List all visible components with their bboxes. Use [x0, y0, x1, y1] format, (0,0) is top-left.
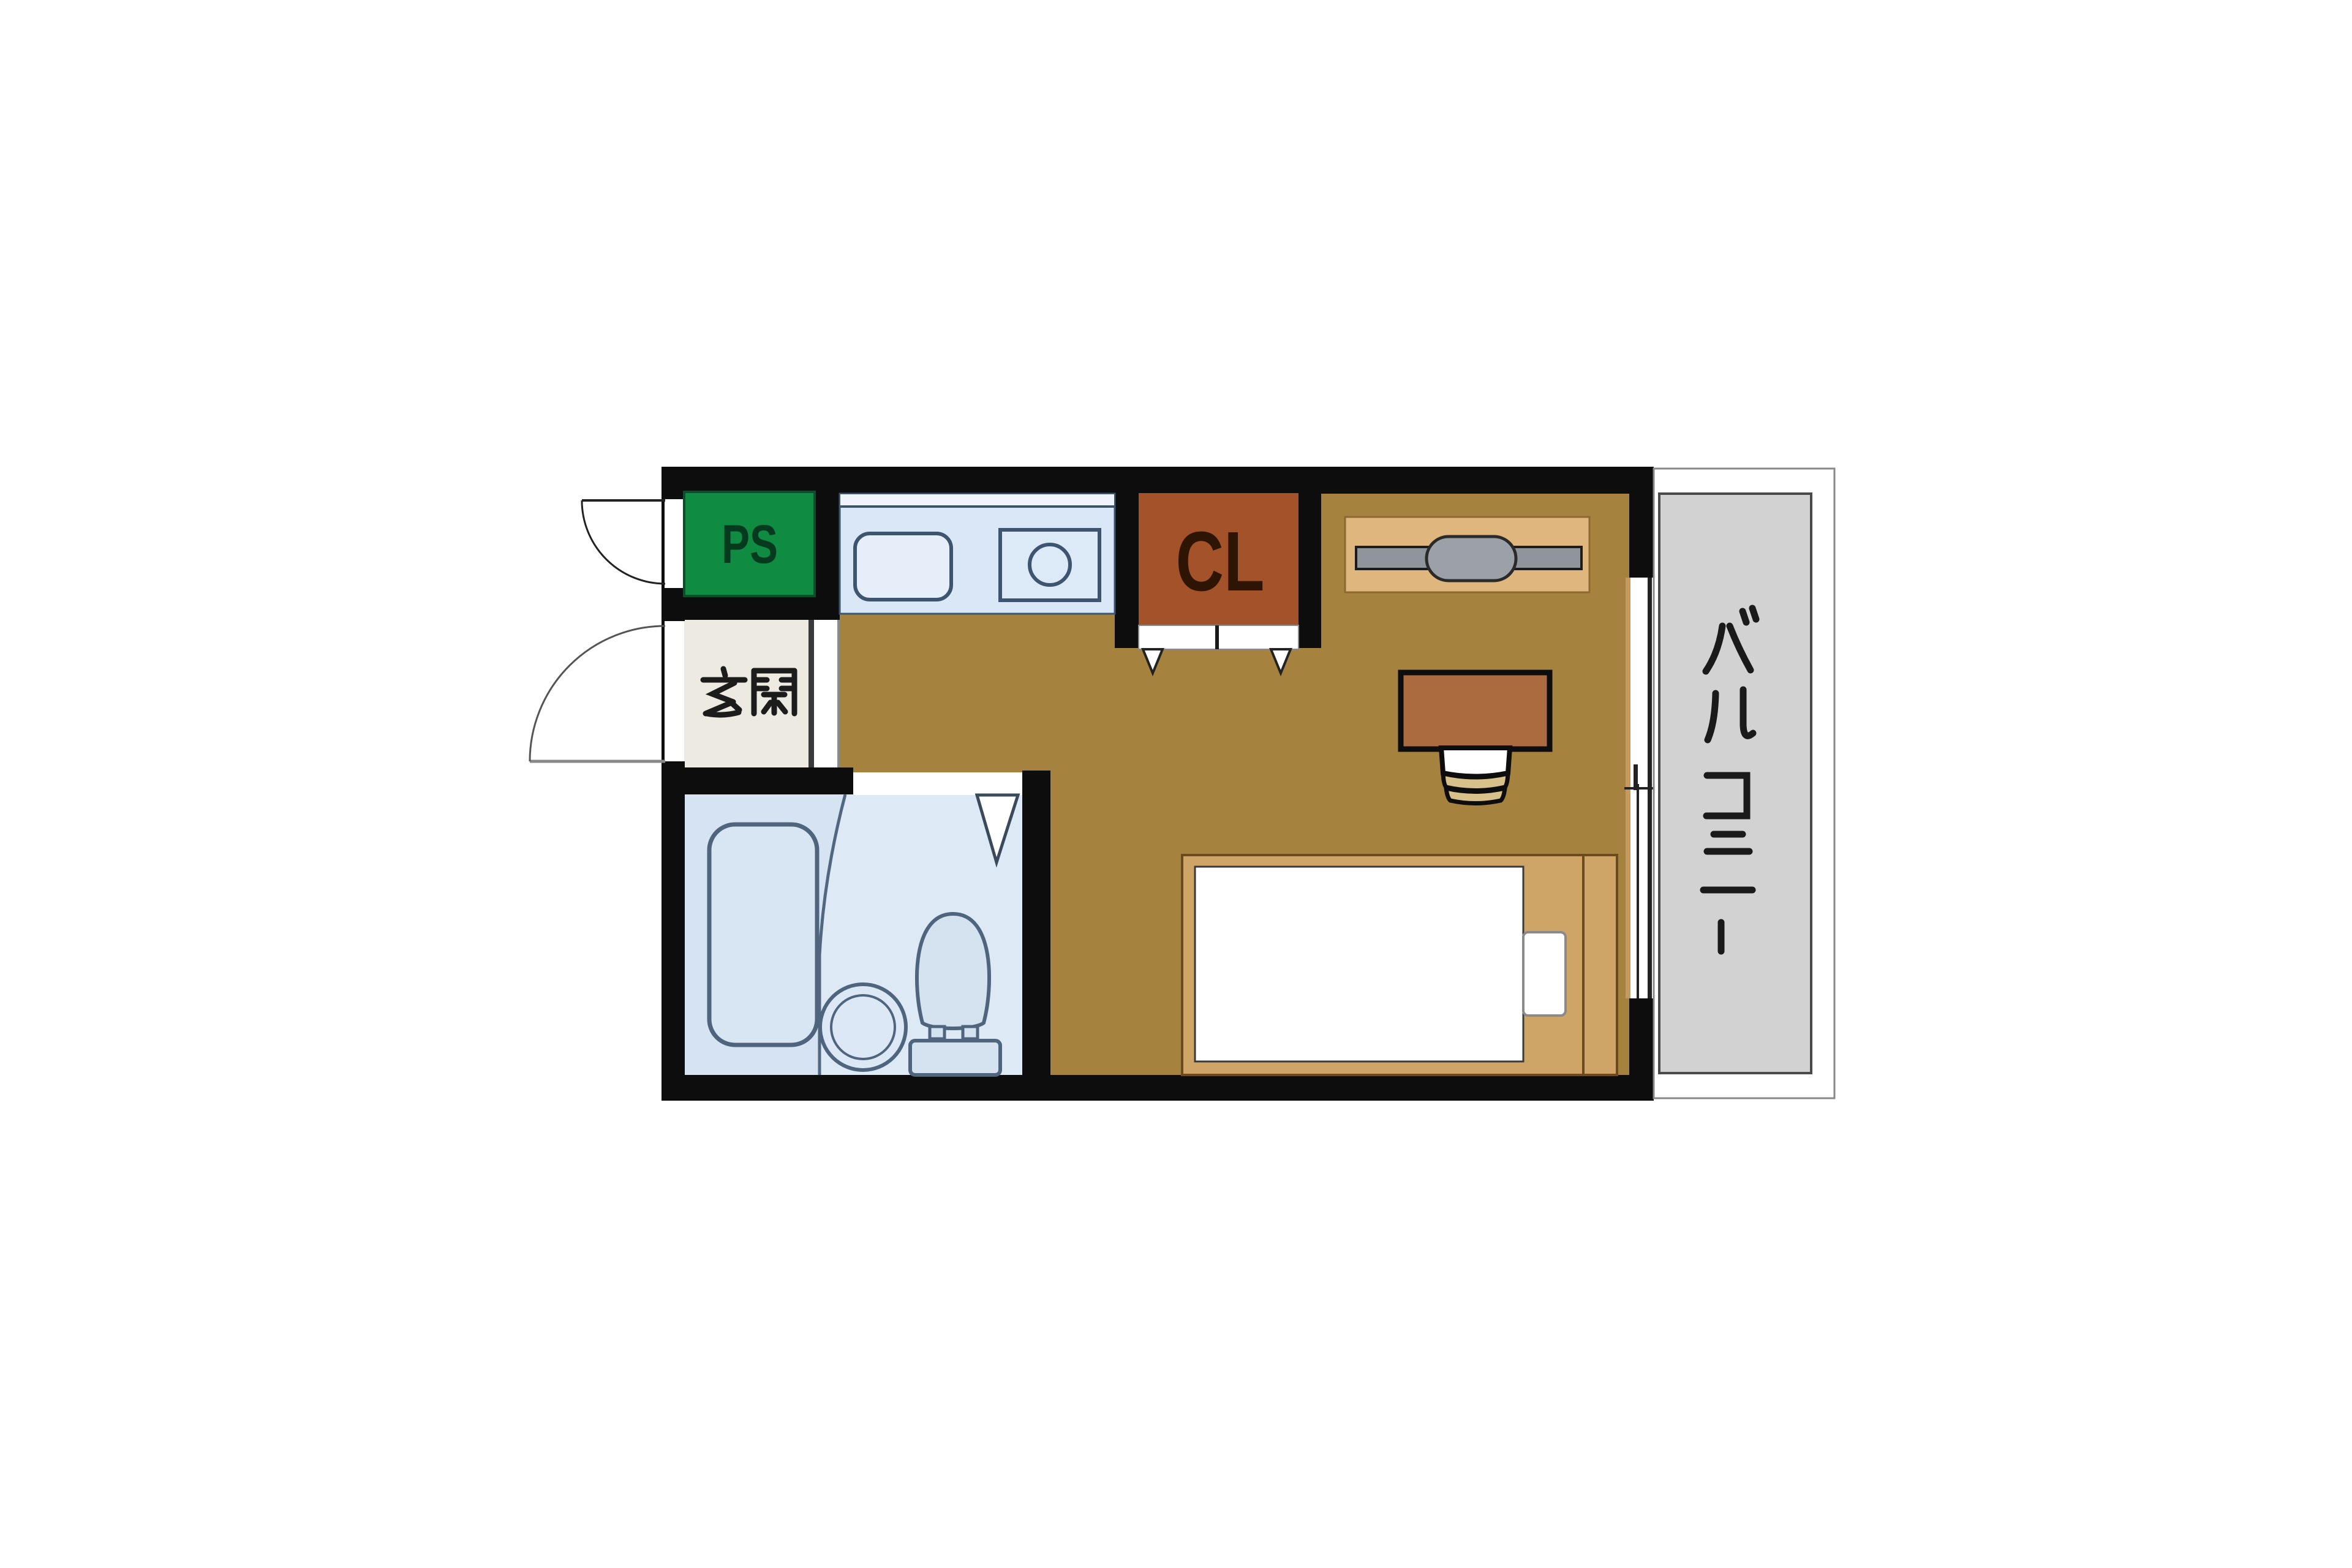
- svg-text:CL: CL: [1176, 514, 1265, 609]
- svg-text:PS: PS: [722, 513, 778, 575]
